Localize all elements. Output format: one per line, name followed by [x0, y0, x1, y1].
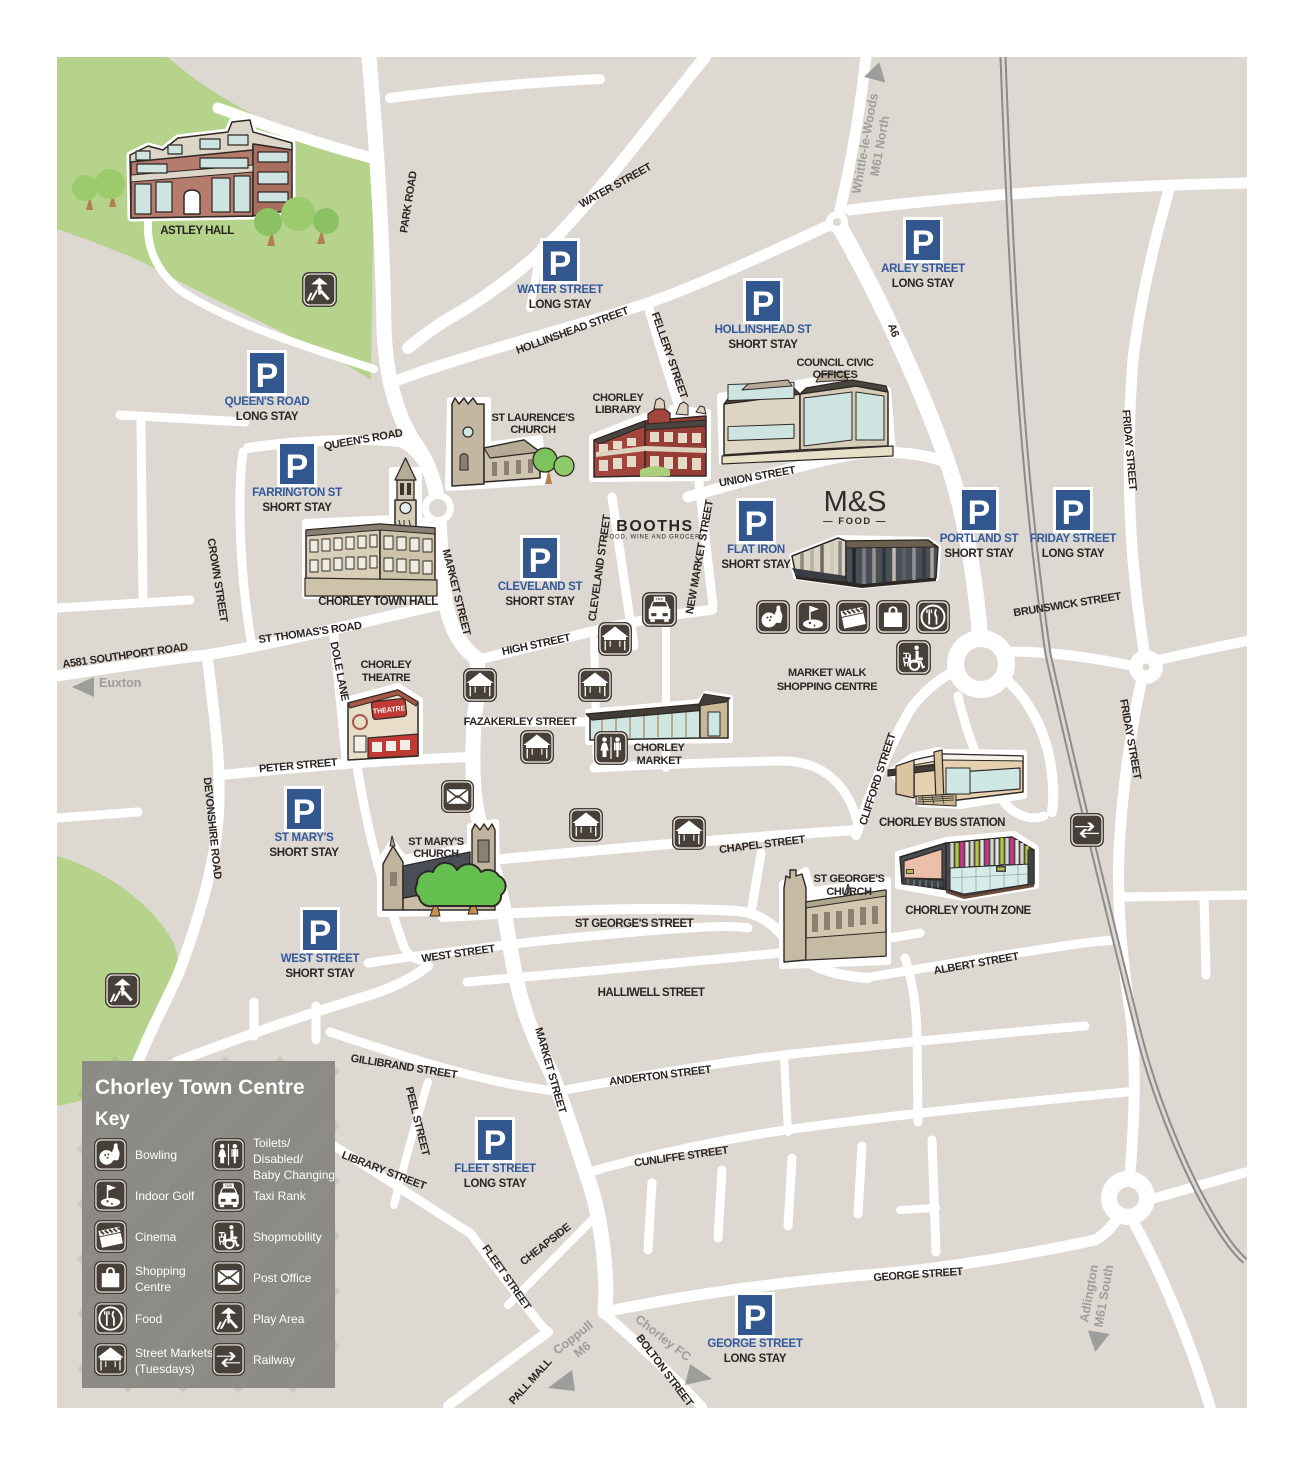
svg-text:COUNCIL CIVIC: COUNCIL CIVIC	[796, 357, 874, 369]
svg-text:Chorley Town Centre: Chorley Town Centre	[95, 1076, 305, 1099]
svg-text:LONG STAY: LONG STAY	[464, 1178, 527, 1190]
svg-text:HOLLINSHEAD ST: HOLLINSHEAD ST	[715, 324, 812, 336]
svg-text:CHORLEY: CHORLEY	[634, 742, 686, 754]
svg-text:MARKET: MARKET	[637, 755, 682, 767]
svg-text:OFFICES: OFFICES	[813, 369, 858, 381]
svg-text:SHORT STAY: SHORT STAY	[285, 968, 355, 980]
svg-text:ARLEY STREET: ARLEY STREET	[881, 263, 965, 275]
svg-text:Centre: Centre	[135, 1280, 171, 1294]
svg-text:Baby Changing: Baby Changing	[253, 1168, 335, 1182]
svg-text:ST LAURENCE'S: ST LAURENCE'S	[492, 412, 575, 424]
svg-text:Bowling: Bowling	[135, 1148, 177, 1162]
svg-text:GEORGE STREET: GEORGE STREET	[707, 1338, 802, 1350]
svg-text:ST GEORGE'S STREET: ST GEORGE'S STREET	[575, 918, 694, 930]
svg-text:SHORT STAY: SHORT STAY	[944, 548, 1014, 560]
svg-text:FLAT IRON: FLAT IRON	[727, 544, 785, 556]
svg-text:CHORLEY: CHORLEY	[361, 659, 413, 671]
svg-text:LONG STAY: LONG STAY	[236, 411, 299, 423]
svg-text:CHORLEY TOWN HALL: CHORLEY TOWN HALL	[318, 596, 438, 608]
svg-text:SHORT STAY: SHORT STAY	[728, 339, 798, 351]
svg-text:CHORLEY: CHORLEY	[593, 392, 645, 404]
svg-text:Play Area: Play Area	[253, 1312, 305, 1326]
svg-text:Key: Key	[95, 1109, 130, 1130]
svg-text:Shopping: Shopping	[135, 1264, 186, 1278]
svg-text:CHORLEY YOUTH ZONE: CHORLEY YOUTH ZONE	[905, 905, 1031, 917]
svg-text:SHORT STAY: SHORT STAY	[505, 596, 575, 608]
svg-text:WEST STREET: WEST STREET	[281, 953, 360, 965]
svg-text:— FOOD —: — FOOD —	[823, 516, 887, 527]
svg-text:Indoor Golf: Indoor Golf	[135, 1189, 195, 1203]
svg-text:CHORLEY BUS STATION: CHORLEY BUS STATION	[879, 817, 1005, 829]
svg-text:ASTLEY HALL: ASTLEY HALL	[160, 225, 234, 237]
svg-text:LONG STAY: LONG STAY	[529, 299, 592, 311]
svg-text:(Tuesdays): (Tuesdays)	[135, 1362, 195, 1376]
svg-text:Post Office: Post Office	[253, 1271, 312, 1285]
svg-text:Railway: Railway	[253, 1353, 295, 1367]
svg-text:PORTLAND ST: PORTLAND ST	[940, 533, 1019, 545]
svg-text:THEATRE: THEATRE	[362, 672, 410, 684]
svg-text:QUEEN'S ROAD: QUEEN'S ROAD	[225, 396, 310, 408]
svg-text:SHORT STAY: SHORT STAY	[269, 847, 339, 859]
svg-text:Shopmobility: Shopmobility	[253, 1230, 322, 1244]
svg-text:CHURCH: CHURCH	[826, 886, 872, 898]
svg-text:FLEET STREET: FLEET STREET	[454, 1163, 536, 1175]
svg-text:CHURCH: CHURCH	[510, 424, 556, 436]
svg-text:Toilets/: Toilets/	[253, 1136, 291, 1150]
svg-text:SHORT STAY: SHORT STAY	[262, 502, 332, 514]
svg-text:Food: Food	[135, 1312, 162, 1326]
svg-text:Street Markets: Street Markets	[135, 1346, 213, 1360]
svg-text:FOOD, WINE AND GROCERY: FOOD, WINE AND GROCERY	[605, 535, 705, 541]
svg-text:MARKET WALK: MARKET WALK	[788, 667, 867, 679]
svg-text:LIBRARY: LIBRARY	[595, 404, 642, 416]
svg-text:ST MARY'S: ST MARY'S	[408, 836, 464, 848]
svg-text:LONG STAY: LONG STAY	[724, 1353, 787, 1365]
svg-text:FAZAKERLEY STREET: FAZAKERLEY STREET	[464, 716, 577, 728]
svg-text:M&S: M&S	[824, 486, 887, 518]
svg-text:Euxton: Euxton	[99, 676, 141, 690]
svg-text:BOOTHS: BOOTHS	[616, 518, 693, 535]
svg-text:SHORT STAY: SHORT STAY	[721, 559, 791, 571]
svg-text:LONG STAY: LONG STAY	[1042, 548, 1105, 560]
svg-text:CLEVELAND ST: CLEVELAND ST	[498, 581, 583, 593]
svg-text:Cinema: Cinema	[135, 1230, 177, 1244]
svg-text:FARRINGTON ST: FARRINGTON ST	[252, 487, 342, 499]
svg-text:CHURCH: CHURCH	[413, 848, 459, 860]
svg-text:Disabled/: Disabled/	[253, 1152, 304, 1166]
svg-text:HALLIWELL STREET: HALLIWELL STREET	[598, 987, 705, 999]
svg-text:FRIDAY STREET: FRIDAY STREET	[1030, 533, 1116, 545]
svg-text:WATER STREET: WATER STREET	[517, 284, 603, 296]
svg-text:Taxi Rank: Taxi Rank	[253, 1189, 307, 1203]
svg-text:ST GEORGE'S: ST GEORGE'S	[814, 873, 885, 885]
svg-text:SHOPPING CENTRE: SHOPPING CENTRE	[777, 681, 877, 693]
svg-text:ST MARY'S: ST MARY'S	[274, 832, 334, 844]
svg-text:LONG STAY: LONG STAY	[892, 278, 955, 290]
